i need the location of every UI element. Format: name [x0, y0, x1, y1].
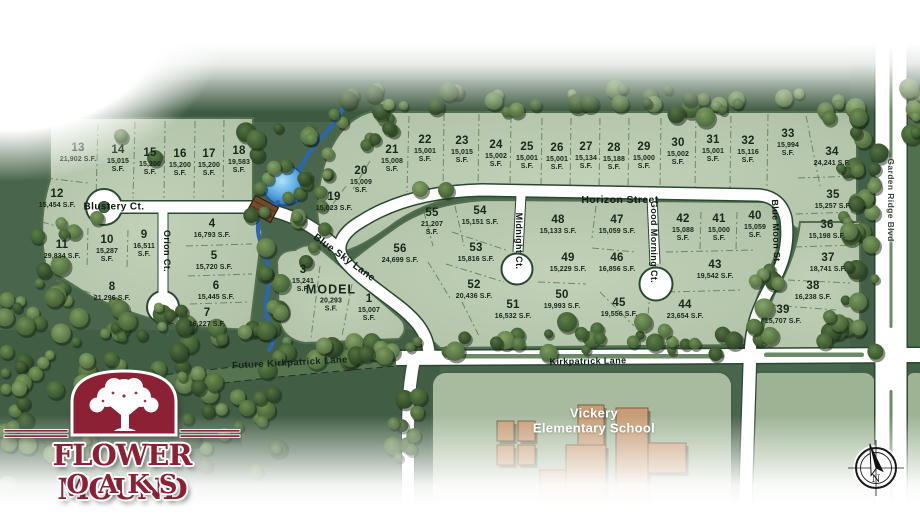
school-label: Vickery Elementary School	[533, 406, 655, 435]
school-name-line1: Vickery	[533, 406, 655, 421]
school-name-line2: Elementary School	[533, 421, 655, 436]
logo-name-line2: OAKS	[2, 470, 242, 500]
compass-rose-icon: N	[846, 434, 908, 510]
site-plan-map: 115,007 S.F.MODEL20,293 S.F.315,241 S.F.…	[0, 0, 920, 515]
compass-north-label: N	[872, 474, 881, 485]
community-logo: FLOWER MOUND OAKS	[2, 368, 242, 514]
